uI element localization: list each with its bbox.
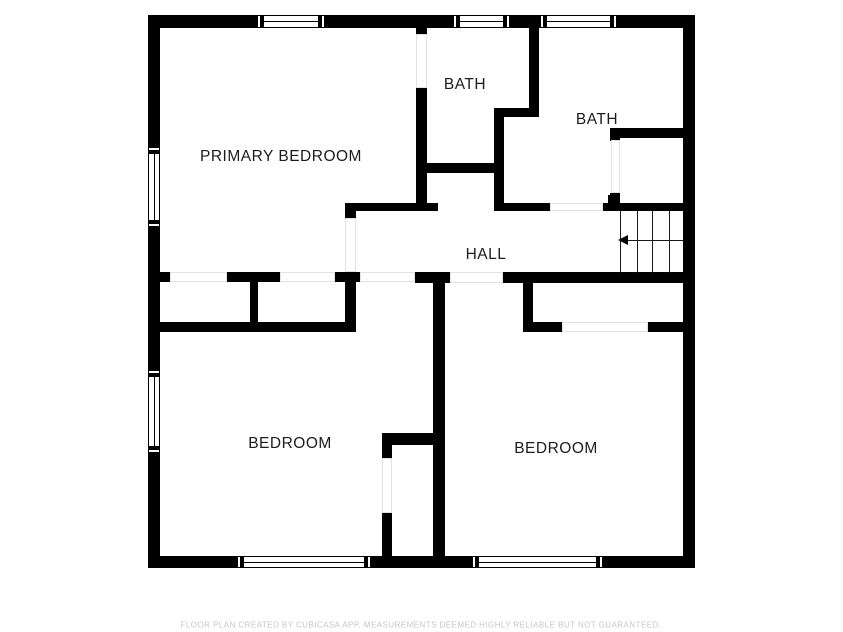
wall (250, 282, 258, 322)
wall (148, 556, 695, 568)
window (472, 556, 603, 568)
window (257, 15, 325, 28)
room-label-bath-2: BATH (576, 111, 618, 129)
wall (335, 272, 360, 282)
window-pane-divider (479, 562, 596, 563)
wall (523, 283, 533, 322)
wall (433, 283, 445, 556)
window-pane-divider (154, 377, 155, 446)
wall (503, 272, 683, 283)
stair-tread (652, 211, 653, 273)
staircase (620, 211, 683, 273)
door-opening (345, 218, 356, 272)
window (237, 556, 371, 568)
stairs-direction-arrow (618, 235, 628, 245)
window (148, 370, 160, 453)
wall (382, 445, 392, 458)
stair-tread (669, 211, 670, 273)
door-opening (550, 203, 603, 211)
wall (382, 433, 433, 445)
door-opening (170, 272, 227, 282)
wall (148, 15, 160, 568)
window-pane-divider (244, 562, 364, 563)
wall (603, 203, 683, 211)
wall (648, 322, 683, 332)
wall (227, 272, 280, 282)
wall (416, 88, 427, 210)
wall (494, 203, 550, 211)
window-pane-divider (547, 21, 610, 22)
window-pane-divider (154, 154, 155, 220)
door-opening (360, 272, 415, 282)
room-label-hall: HALL (466, 246, 507, 264)
window (540, 15, 617, 28)
room-label-bath-1: BATH (444, 76, 486, 94)
wall (420, 163, 504, 173)
door-opening (450, 272, 503, 283)
wall (608, 195, 620, 203)
wall (416, 27, 427, 34)
wall (415, 272, 450, 283)
wall (345, 203, 356, 218)
door-opening (416, 34, 427, 88)
stairs-run-line (628, 240, 683, 241)
wall (529, 27, 539, 117)
wall (160, 272, 170, 282)
room-label-primary-bedroom: PRIMARY BEDROOM (200, 148, 362, 166)
wall (610, 128, 683, 138)
stair-tread (637, 211, 638, 273)
footer-disclaimer: FLOOR PLAN CREATED BY CUBICASA APP. MEAS… (181, 621, 662, 630)
wall (523, 322, 562, 332)
window (453, 15, 510, 28)
closet-sliding-opening (562, 322, 648, 332)
window (148, 147, 160, 227)
wall (148, 322, 352, 332)
window-pane-divider (264, 21, 318, 22)
wall (382, 513, 392, 556)
floor-plan: PRIMARY BEDROOM BATH BATH HALL BEDROOM B… (0, 0, 843, 632)
wall (494, 108, 504, 210)
room-label-bedroom-right: BEDROOM (514, 440, 598, 458)
wall (345, 203, 438, 211)
door-opening (280, 272, 335, 282)
wall (683, 15, 695, 568)
window-pane-divider (460, 21, 503, 22)
door-opening (382, 458, 392, 513)
room-label-bedroom-left: BEDROOM (248, 435, 332, 453)
door-opening (611, 140, 620, 193)
